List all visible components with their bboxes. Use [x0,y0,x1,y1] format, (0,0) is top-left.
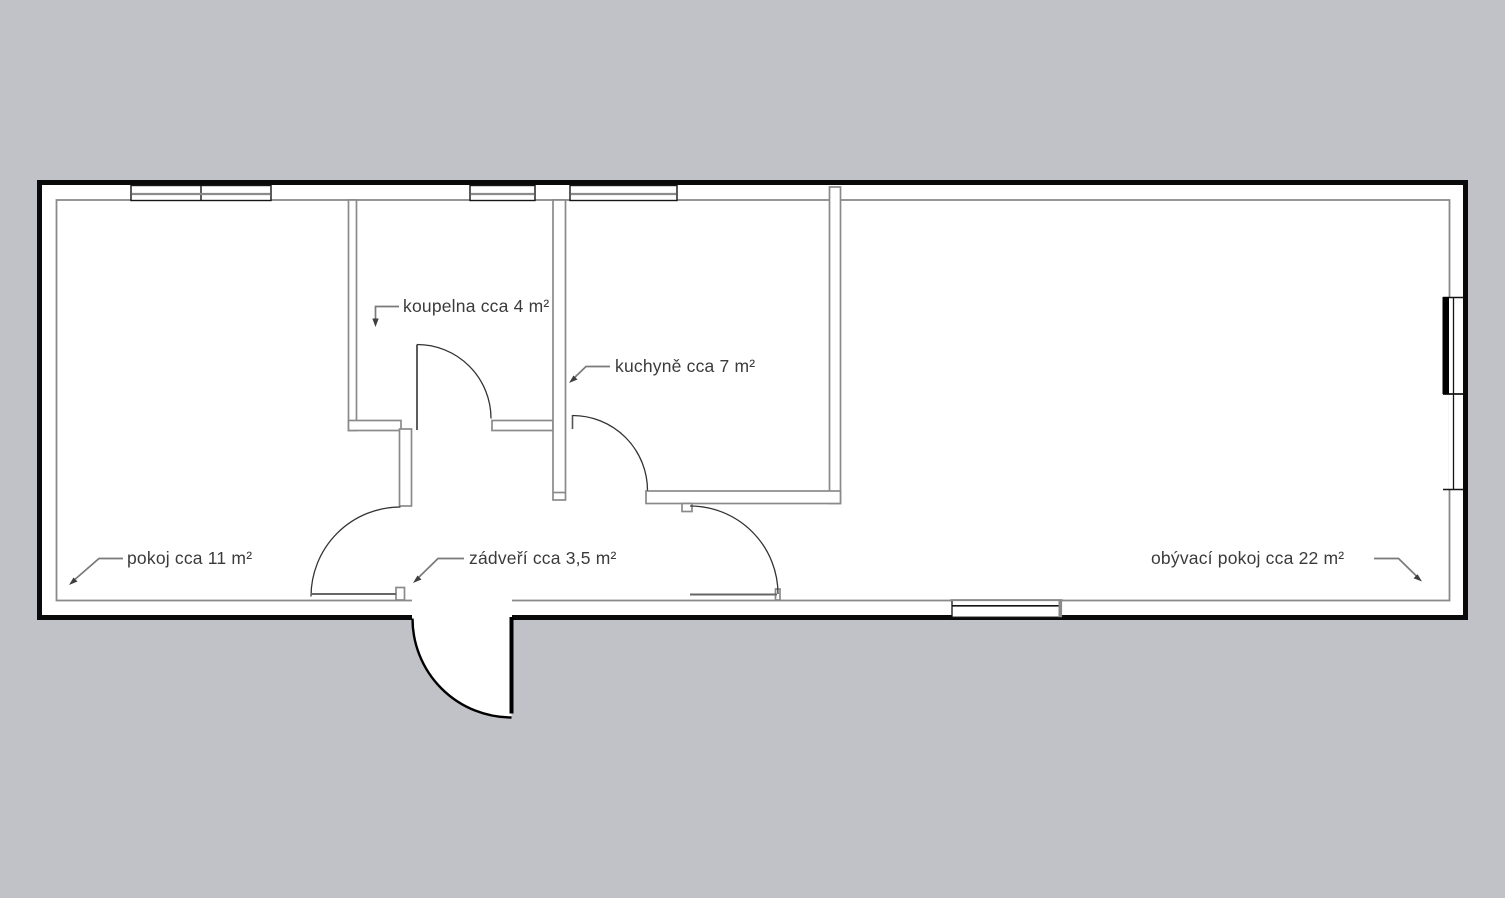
window-pokoj [131,186,271,201]
wall-kuchyne-bottom [646,491,841,504]
floor-plan-drawing [0,0,1505,898]
room-label-kuchyne: kuchyně cca 7 m² [615,357,755,376]
wall-kuchyne-right [830,187,841,504]
wall-koupelna-left [349,200,357,431]
room-label-obyvaci-pokoj: obývací pokoj cca 22 m² [1151,549,1344,568]
window-koupelna [470,186,535,201]
wall-kuchyne-left [553,200,566,500]
window-kuchyne [570,186,677,201]
wall-koupelna-bottom-right [492,421,553,431]
jamb-pokoj-door [396,588,405,601]
balcony-door-panel [1443,297,1450,394]
window-obyvaci-bottom [950,600,1063,617]
floor-plan: pokoj cca 11 m² koupelna cca 4 m² kuchyn… [0,0,1505,898]
jamb-obyvaci-door [682,504,692,512]
wall-koupelna-bottom-left [349,421,402,431]
entrance-door-leaf [510,617,514,714]
room-label-zadveri: zádveří cca 3,5 m² [469,549,617,568]
room-label-koupelna: koupelna cca 4 m² [403,297,549,316]
wall-pokoj-stub [400,429,412,506]
room-label-pokoj: pokoj cca 11 m² [127,549,252,568]
entrance-opening [412,599,512,622]
